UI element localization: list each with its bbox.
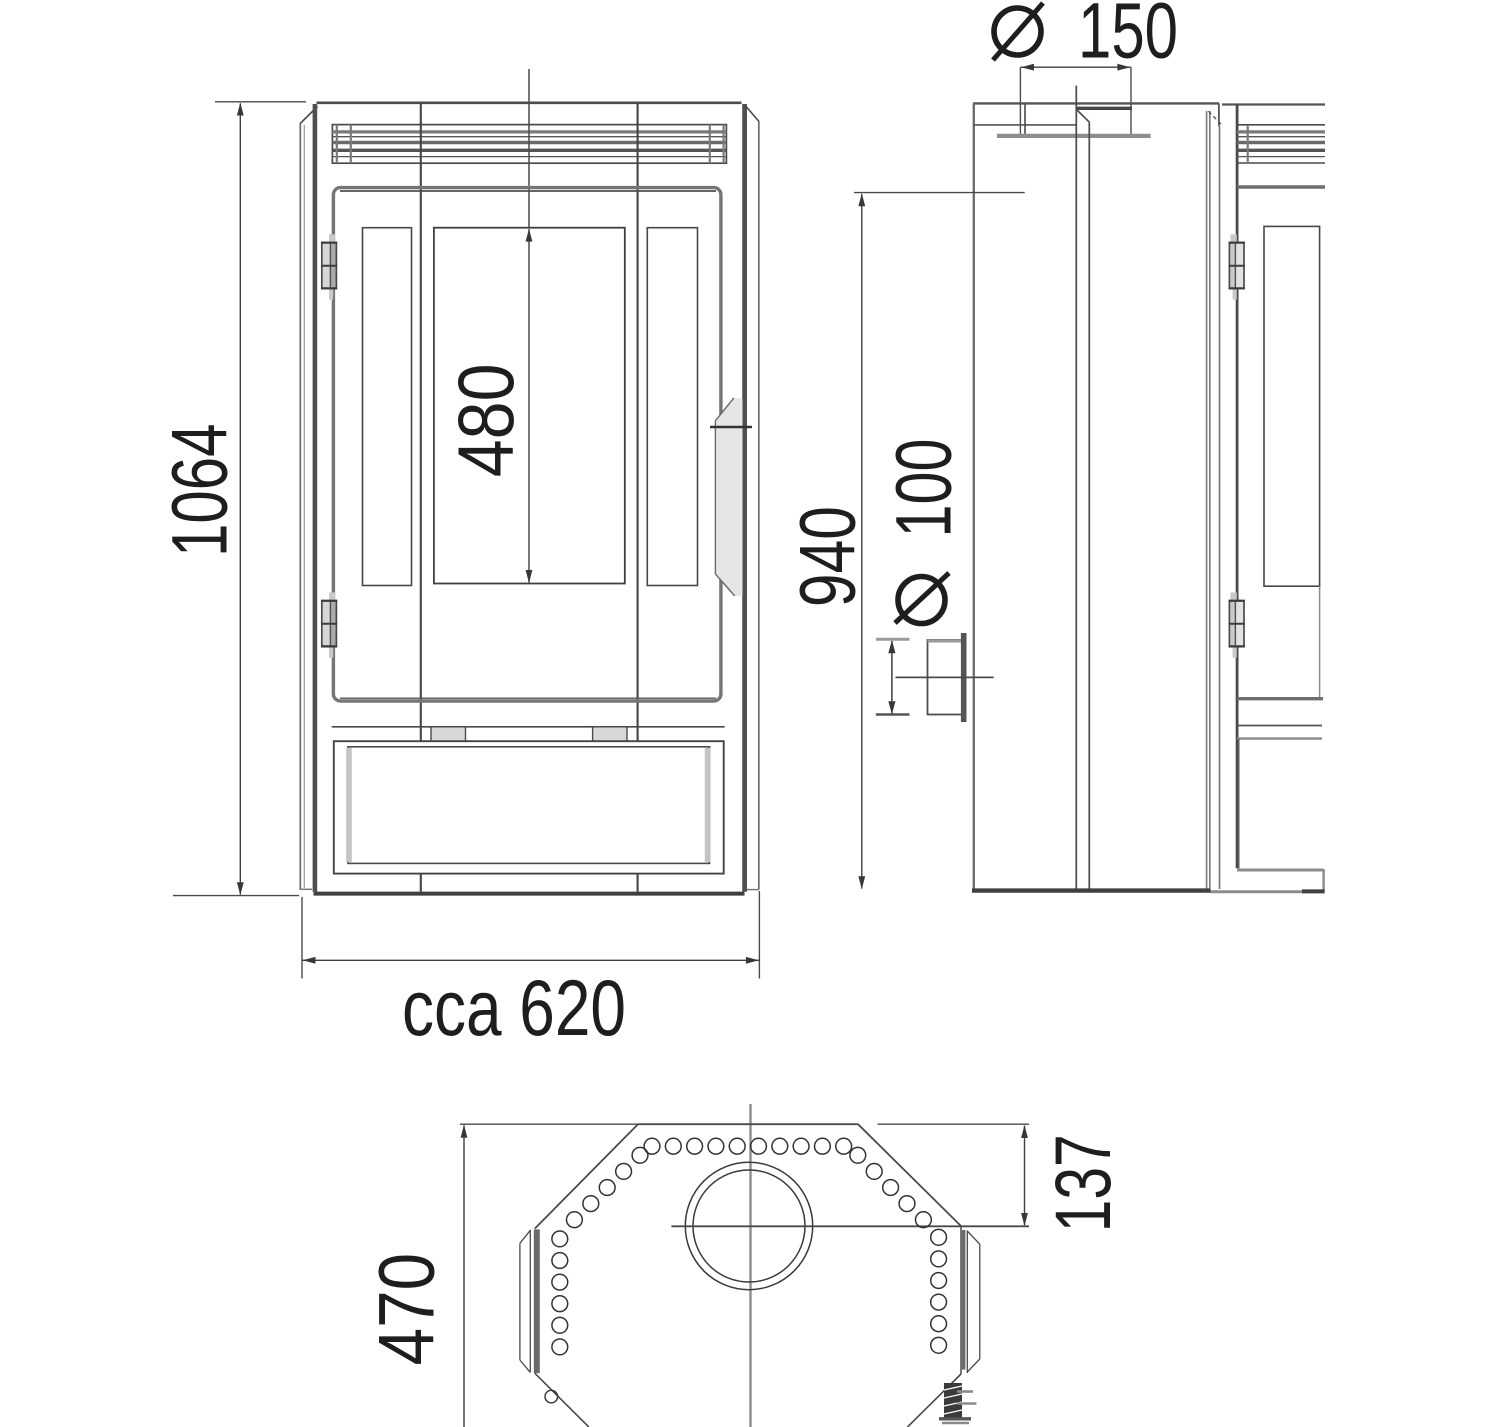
svg-text:1064: 1064	[155, 424, 244, 558]
svg-text:100: 100	[878, 439, 967, 538]
svg-text:470: 470	[362, 1253, 451, 1366]
svg-text:137: 137	[1038, 1134, 1127, 1232]
svg-text:940: 940	[783, 506, 872, 607]
svg-text:480: 480	[441, 364, 530, 478]
svg-text:cca 620: cca 620	[402, 963, 626, 1052]
svg-text:150: 150	[1078, 0, 1178, 75]
